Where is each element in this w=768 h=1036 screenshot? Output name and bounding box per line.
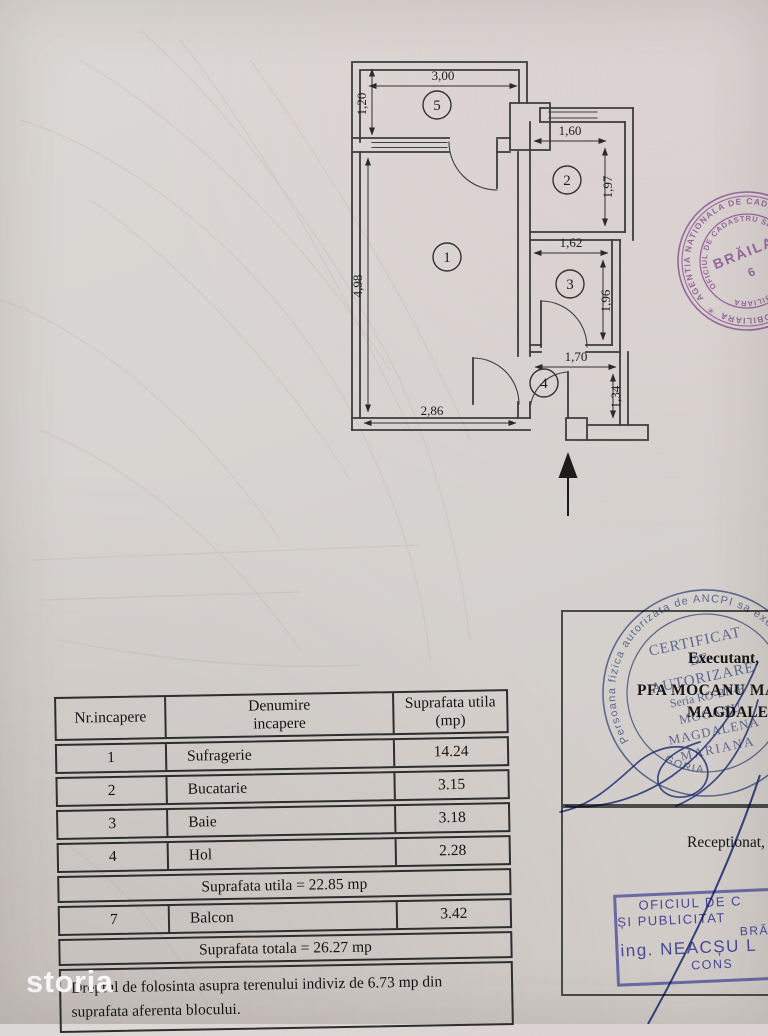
office-stamp-line4: ing. NEACȘU L bbox=[620, 936, 757, 962]
storia-watermark: storia bbox=[26, 964, 113, 1000]
balcony-row: 7 Balcon 3.42 bbox=[58, 898, 512, 936]
room-number-kitchen: 2 bbox=[563, 173, 571, 189]
header-nr: Nr.incapere bbox=[56, 697, 167, 739]
dim-living-height: 4,98 bbox=[350, 275, 365, 298]
header-denumire: Denumire incapere bbox=[166, 693, 395, 737]
table-header-row: Nr.incapere Denumire incapere Suprafata … bbox=[54, 689, 509, 741]
office-stamp-line5: CONS bbox=[691, 957, 734, 973]
room-number-balcony: 5 bbox=[433, 98, 441, 114]
subtotal-row: Suprafata utila = 22.85 mp bbox=[57, 868, 511, 903]
room-number-bath: 3 bbox=[566, 277, 574, 293]
dim-hall-depth: 1,34 bbox=[608, 385, 623, 408]
dim-living-width: 2,86 bbox=[421, 403, 444, 418]
dim-balcony-width: 3,00 bbox=[432, 68, 455, 83]
header-suprafata: Suprafata utila (mp) bbox=[394, 691, 507, 733]
plan-walls bbox=[352, 62, 648, 440]
areas-table: Nr.incapere Denumire incapere Suprafata … bbox=[54, 689, 514, 1036]
executant-name-line2: MAGDALENA bbox=[687, 704, 768, 722]
dim-balcony-depth: 1,20 bbox=[354, 93, 369, 116]
scanned-cadastral-sketch: { "plan": { "room_numbers": { "living": … bbox=[0, 0, 768, 1024]
table-row: 4 Hol 2.28 bbox=[57, 835, 511, 873]
dim-kitchen-depth: 1,97 bbox=[600, 175, 615, 198]
total-row: Suprafata totala = 26.27 mp bbox=[58, 931, 512, 966]
dim-hall-width: 1,70 bbox=[565, 349, 588, 364]
note-line2: suprafata aferenta blocului. bbox=[71, 998, 241, 1025]
entrance-arrow-icon bbox=[559, 452, 578, 516]
dim-kitchen-width: 1,60 bbox=[559, 123, 582, 138]
table-row: 1 Sufragerie 14.24 bbox=[55, 736, 509, 774]
room-number-living: 1 bbox=[443, 250, 451, 266]
note-line1: Dreptul de folosinta asupra terenului in… bbox=[71, 970, 442, 1000]
office-stamp-line2: ȘI PUBLICITAT bbox=[617, 910, 726, 930]
receptionat-label: Receptionat, bbox=[687, 834, 765, 852]
dim-bath-depth: 1,96 bbox=[598, 289, 613, 312]
executant-name-line1: PFA MOCANU MA bbox=[637, 682, 768, 700]
note-row: Dreptul de folosinta asupra terenului in… bbox=[59, 961, 514, 1033]
office-rect-stamp: OFICIUL DE C ȘI PUBLICITAT BRĂ ing. NEAC… bbox=[613, 887, 768, 987]
executant-label: Executant, bbox=[688, 650, 759, 668]
room-number-hall: 4 bbox=[540, 376, 548, 392]
table-row: 2 Bucatarie 3.15 bbox=[55, 769, 509, 807]
table-row: 3 Baie 3.18 bbox=[56, 802, 510, 840]
office-stamp-line1: OFICIUL DE C bbox=[638, 893, 742, 912]
dim-bath-width: 1,62 bbox=[560, 235, 583, 250]
boxes-divider bbox=[561, 804, 768, 806]
